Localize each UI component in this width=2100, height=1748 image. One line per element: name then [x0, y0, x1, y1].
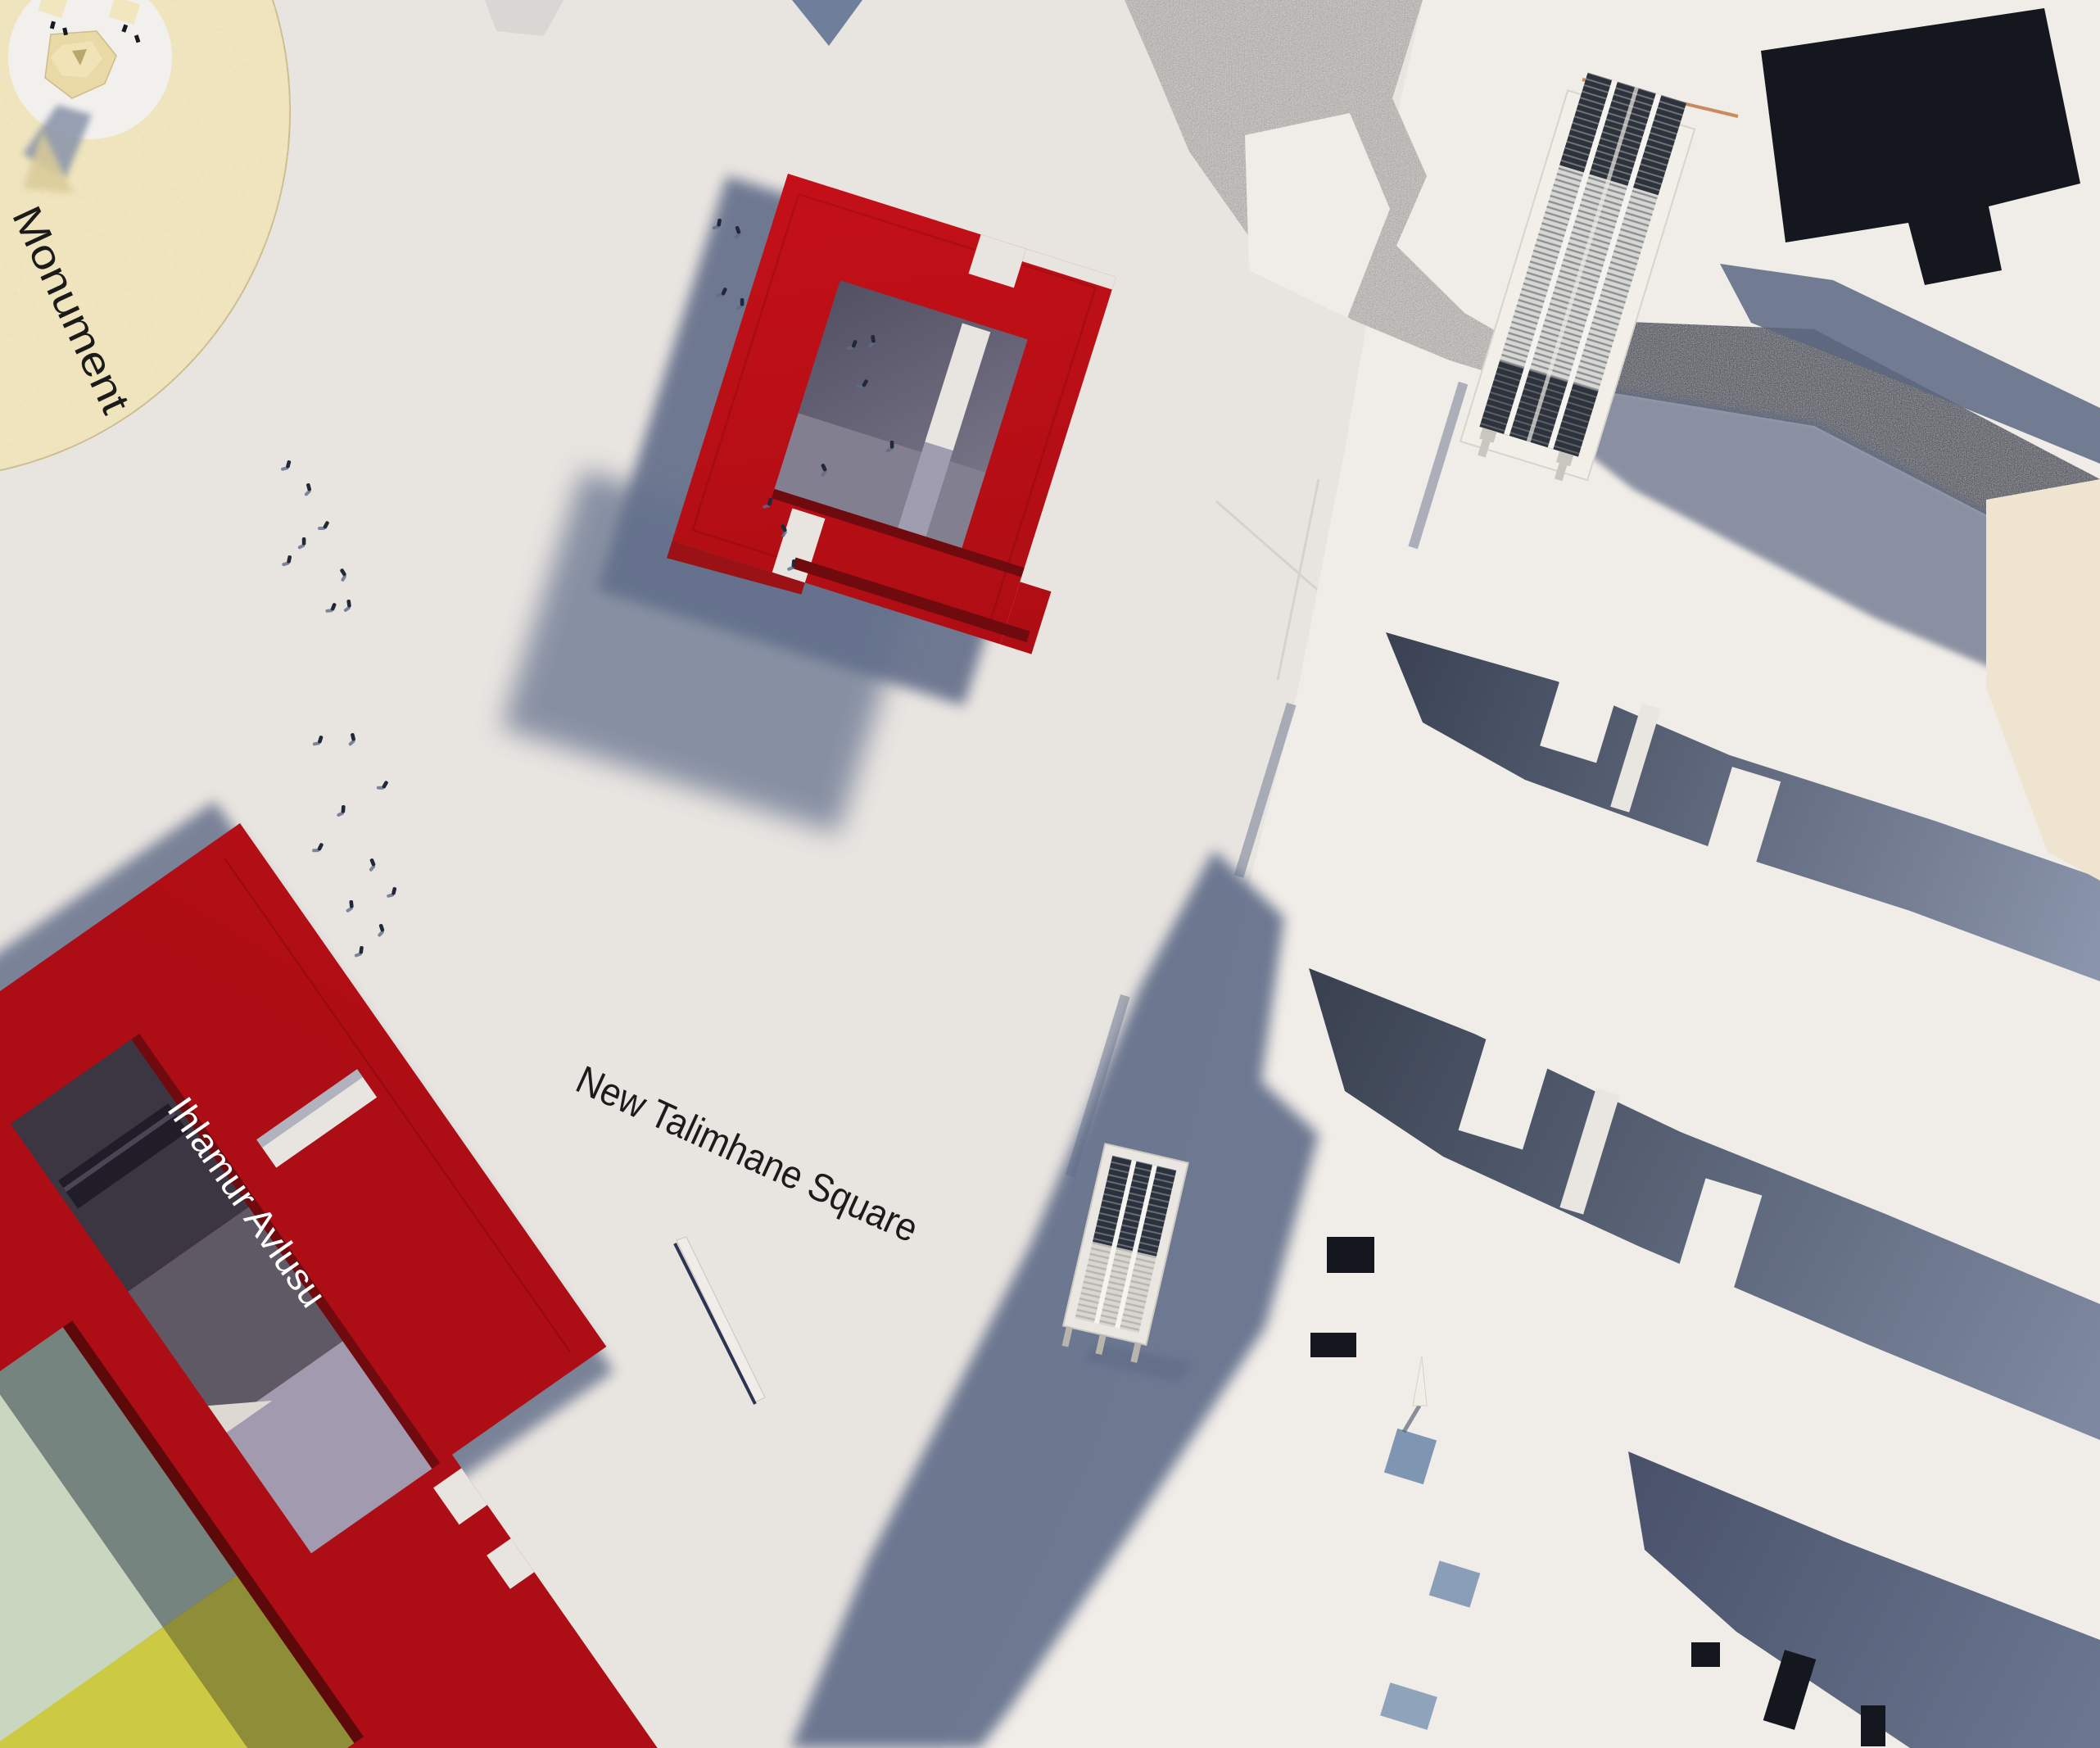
masterplan-render: Monument — [0, 0, 2100, 1748]
scene-svg: Monument — [0, 0, 2100, 1748]
